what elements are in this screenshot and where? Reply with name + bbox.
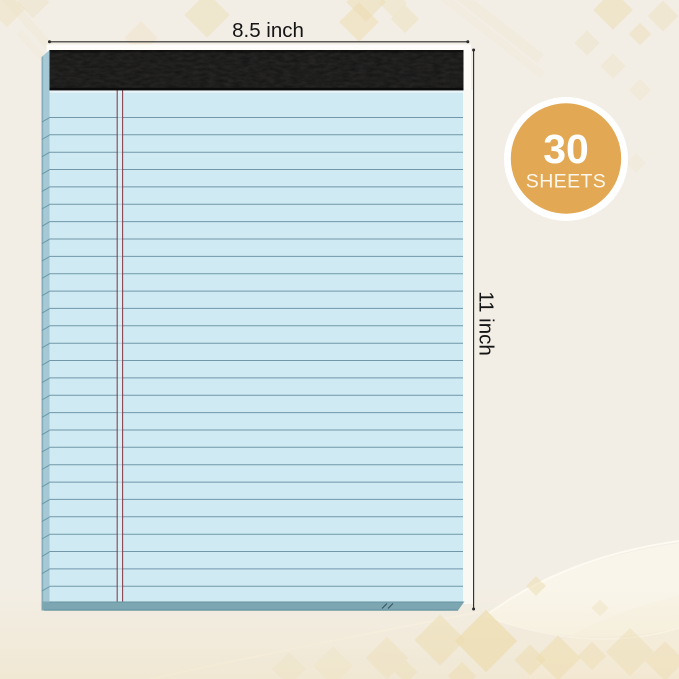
svg-text:SHEETS: SHEETS (526, 171, 606, 193)
svg-text:8.5 inch: 8.5 inch (232, 19, 304, 42)
svg-text:11 inch: 11 inch (475, 291, 498, 356)
svg-text:30: 30 (543, 126, 589, 172)
